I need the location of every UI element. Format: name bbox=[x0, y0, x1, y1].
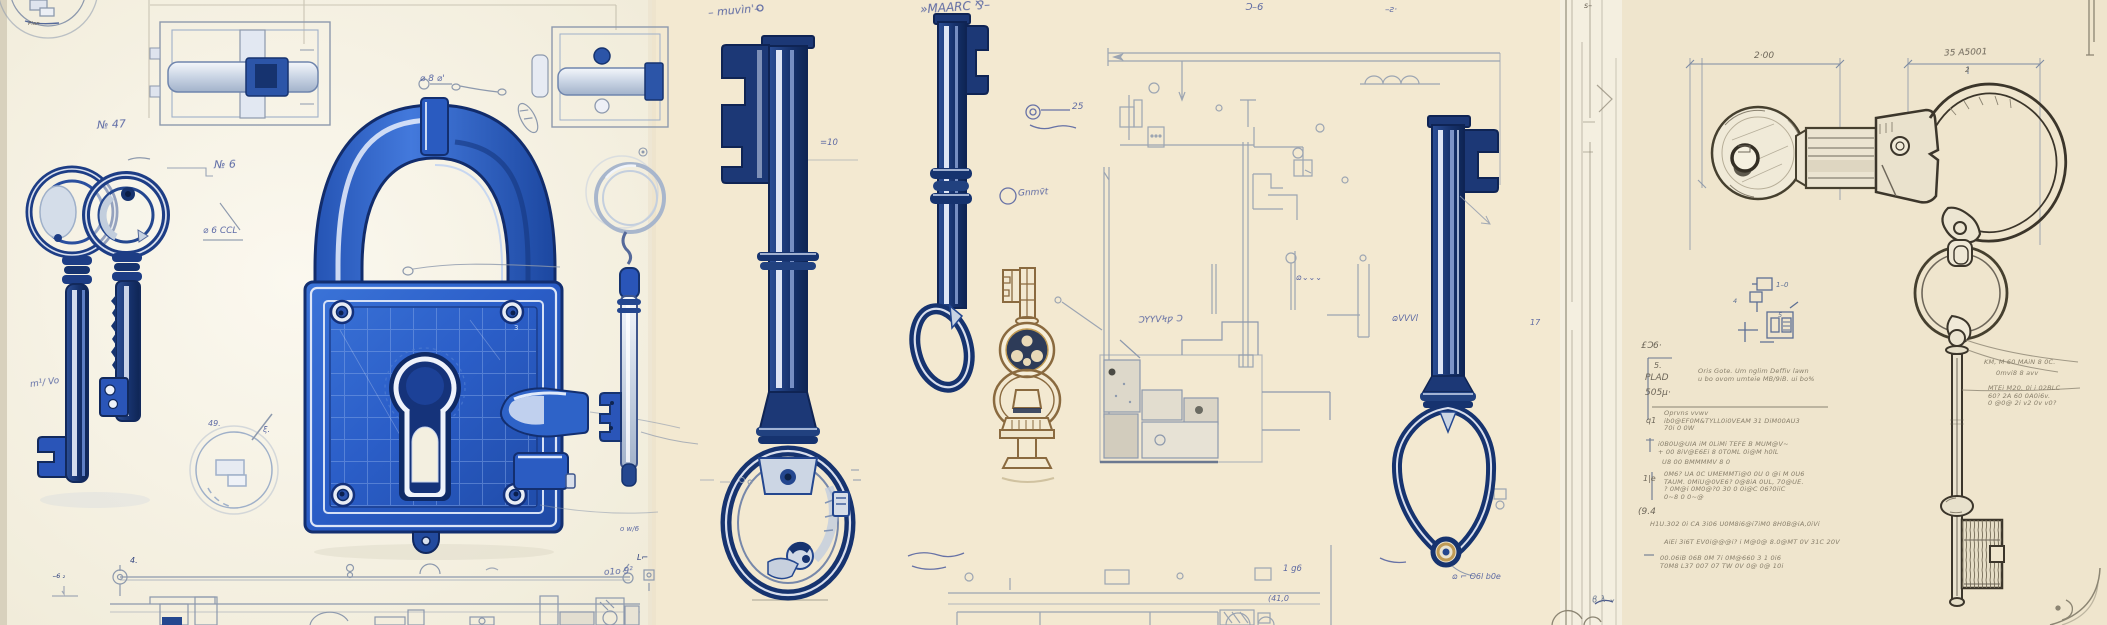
blueprint-sheet: Plan № 47 № 6 ⌀ 6 CCL ⌀ 8 ⌀' m¹/ Vo 49. … bbox=[0, 0, 2107, 625]
blueprint-drawing bbox=[0, 0, 2107, 625]
